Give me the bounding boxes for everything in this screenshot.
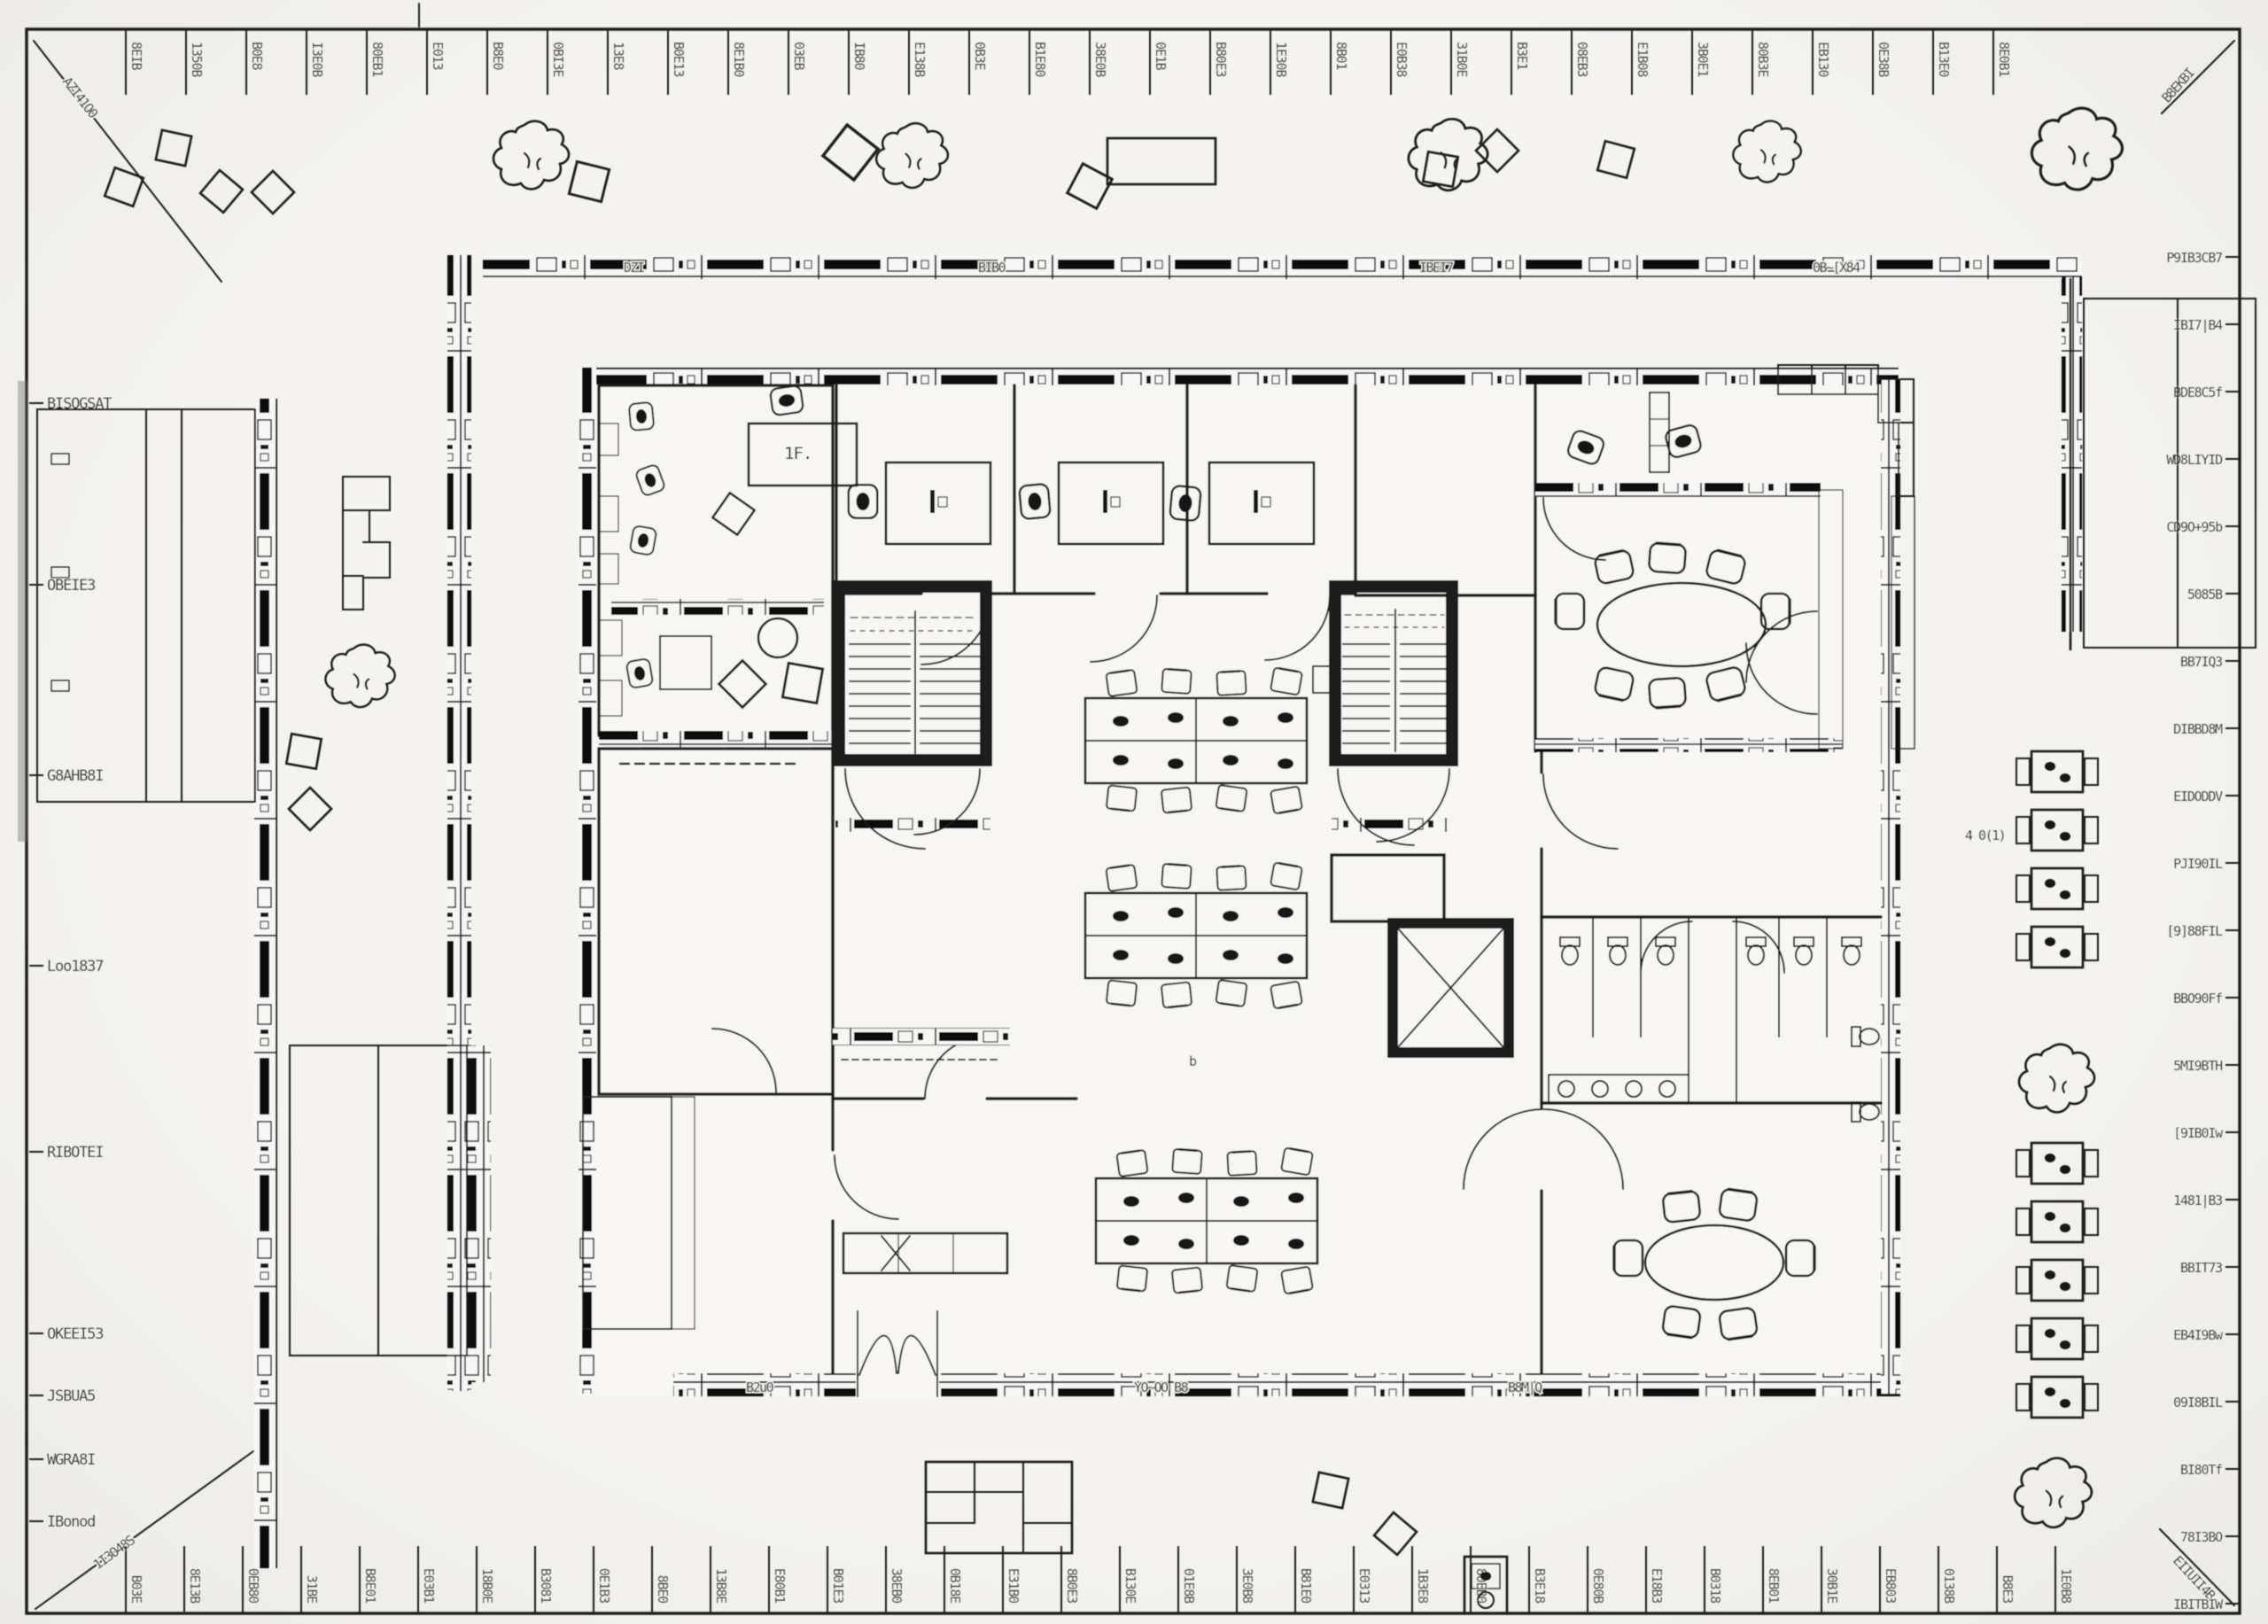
tick-top-item: 0BI3E: [548, 29, 566, 95]
tick-top-item: B0E13: [668, 29, 687, 95]
svg-text:8E0B1: 8E0B1: [1996, 42, 2012, 77]
svg-text:EB803: EB803: [1883, 1568, 1899, 1603]
label-left-item: Loo1837: [29, 958, 103, 975]
tree-icon: [325, 645, 394, 708]
label-right-item: BB7IQ3: [2180, 654, 2240, 670]
tick-top-item: 0B3E: [969, 29, 988, 95]
tick-top-item: IB80: [849, 29, 867, 95]
dimension-ticks-bottom: B03E8E13B0EB8031BEB8E01E03B118B0EB30810E…: [126, 1546, 2074, 1613]
svg-text:BBO90Ff: BBO90Ff: [2173, 991, 2222, 1006]
wall-band: [599, 731, 833, 749]
svg-text:31B0E: 31B0E: [1454, 42, 1470, 77]
dimension-labels-left: BISOGSATOBEIE3G8AHB8ILoo1837RIBOTEIOKEEI…: [29, 395, 112, 1531]
svg-text:3B0E1: 3B0E1: [1695, 42, 1711, 77]
svg-text:8BE0: 8BE0: [655, 1575, 671, 1604]
svg-text:08EB3: 08EB3: [1574, 42, 1590, 76]
tick-bottom-item: B03E: [126, 1546, 144, 1613]
svg-text:31BE: 31BE: [304, 1575, 320, 1604]
corner-note-top-left: AZI41O0: [59, 74, 102, 121]
tick-top-item: 0E1B: [1150, 29, 1169, 95]
svg-text:0E1B3: 0E1B3: [596, 1568, 612, 1603]
svg-text:B03E: B03E: [128, 1575, 144, 1604]
svg-text:IBonod: IBonod: [47, 1513, 95, 1531]
dimension-ticks-top: 8EIB1350BB0E8I3E0B80EB1E013B8E00BI3E13E8…: [126, 29, 2012, 95]
svg-text:1E0B8: 1E0B8: [2058, 1568, 2074, 1604]
tick-top-item: 8B01: [1331, 29, 1349, 95]
corner-note-top-right: B8EKBI: [2158, 65, 2197, 105]
site-wall-east: [2062, 277, 2082, 632]
tree-icon: [2019, 1045, 2094, 1113]
tick-top-item: 8E0B1: [1993, 29, 2012, 95]
svg-text:WD8LIYID: WD8LIYID: [2166, 452, 2223, 468]
svg-text:P9IB3CB7: P9IB3CB7: [2166, 250, 2222, 266]
label-right-item: BBO90Ff: [2173, 991, 2240, 1006]
tick-bottom-item: 31BE: [301, 1546, 320, 1613]
tick-bottom-item: E31B0: [1003, 1546, 1021, 1613]
tick-top-item: 1E30B: [1270, 29, 1289, 95]
tick-top-item: E0B38: [1391, 29, 1410, 95]
svg-text:B13E0: B13E0: [1936, 42, 1952, 77]
label-left-item: IBonod: [29, 1513, 95, 1531]
svg-text:IBITBIW: IBITBIW: [2173, 1597, 2224, 1612]
tick-top-item: 0E38B: [1873, 29, 1891, 95]
tick-top-item: 13E8: [608, 29, 626, 95]
tick-bottom-item: B8E01: [360, 1546, 378, 1613]
tick-bottom-item: B130E: [1120, 1546, 1138, 1613]
label-right-item: 1481|B3: [2173, 1193, 2240, 1208]
tick-bottom-item: 18B0E: [477, 1546, 495, 1613]
tick-top-item: E1B08: [1632, 29, 1651, 95]
svg-text:B3E1: B3E1: [1514, 42, 1530, 70]
tick-bottom-item: 30B1E: [1821, 1546, 1840, 1613]
tick-bottom-item: B0318: [1705, 1546, 1723, 1613]
svg-text:[9]88FIL: [9]88FIL: [2166, 923, 2223, 939]
tick-top-item: B80E3: [1210, 29, 1229, 95]
outdoor-seating-east: 4 0(1): [1965, 751, 2098, 1418]
svg-text:E31B0: E31B0: [1006, 1568, 1021, 1604]
shrub-icon: [289, 788, 331, 830]
shrub-icon: [1313, 1472, 1348, 1508]
tick-top-item: B1E80: [1029, 29, 1048, 95]
label-left-item: OBEIE3: [29, 577, 95, 594]
svg-text:BI80Tf: BI80Tf: [2180, 1462, 2222, 1478]
wall-east: [1881, 379, 1900, 1394]
svg-text:5085B: 5085B: [2187, 587, 2223, 602]
tree-icon: [2031, 108, 2122, 190]
label-left-item: WGRA8I: [29, 1451, 95, 1469]
svg-text:B01E3: B01E3: [830, 1568, 846, 1603]
tick-bottom-item: E18B3: [1646, 1546, 1665, 1613]
floorplan-canvas: AZI41O0 B8EKBI 1I3O48S EIIUII4B 8EIB1350…: [0, 0, 2268, 1624]
tick-bottom-item: 38EB0: [886, 1546, 905, 1613]
tick-top-item: I3E0B: [307, 29, 325, 95]
tree-icon: [2015, 1458, 2092, 1527]
wall-north: [579, 368, 1899, 385]
svg-text:BDE8C5f: BDE8C5f: [2173, 385, 2222, 400]
parking-rows-west: [37, 409, 255, 802]
shrub-icon: [156, 130, 191, 166]
svg-text:E80B1: E80B1: [772, 1568, 788, 1604]
tree-icon: [493, 121, 569, 190]
bench-note: 4 0(1): [1965, 828, 2005, 843]
tick-top-item: 31B0E: [1451, 29, 1470, 95]
label-right-item: 09I8BIL: [2173, 1395, 2240, 1410]
svg-text:1481|B3: 1481|B3: [2173, 1193, 2222, 1208]
shrub-icon: [1597, 141, 1635, 178]
label-right-item: 78I3BO: [2180, 1529, 2240, 1545]
svg-text:OBEIE3: OBEIE3: [47, 577, 95, 594]
svg-text:0B18E: 0B18E: [947, 1568, 963, 1604]
label-right-item: BDE8C5f: [2173, 385, 2240, 400]
svg-text:30B1E: 30B1E: [1824, 1568, 1840, 1604]
tick-bottom-item: B81E0: [1295, 1546, 1314, 1613]
svg-text:I3E0B: I3E0B: [309, 42, 325, 77]
svg-text:IBEI7: IBEI7: [1419, 260, 1453, 276]
label-right-item: IBITBIW: [2173, 1597, 2240, 1612]
svg-text:B0E13: B0E13: [671, 42, 687, 76]
svg-text:E0313: E0313: [1356, 1568, 1372, 1603]
svg-text:PJI90IL: PJI90IL: [2173, 856, 2223, 872]
wall-west: [579, 368, 596, 1394]
svg-text:BB7IQ3: BB7IQ3: [2180, 654, 2222, 670]
svg-text:8E13B: 8E13B: [187, 1568, 203, 1604]
svg-text:8EB01: 8EB01: [1766, 1568, 1782, 1604]
svg-text:0BI3E: 0BI3E: [550, 42, 566, 77]
svg-text:B0E8: B0E8: [249, 42, 265, 70]
label-left-item: OKEEI53: [29, 1325, 103, 1343]
svg-text:8B0E3: 8B0E3: [1064, 1568, 1080, 1603]
svg-text:RIBOTEI: RIBOTEI: [47, 1144, 103, 1162]
stair-side-column: [468, 1045, 491, 1382]
svg-text:B8E0: B8E0: [490, 42, 506, 70]
svg-text:0EB80: 0EB80: [245, 1568, 261, 1604]
svg-text:8EIB: 8EIB: [128, 42, 144, 70]
svg-text:YO~OO B8: YO~OO B8: [1134, 1379, 1189, 1395]
paving-puzzle-south: [926, 1462, 1072, 1553]
svg-text:B81E0: B81E0: [1298, 1568, 1314, 1604]
tree-icon: [876, 123, 948, 188]
scan-smudge: [18, 381, 28, 842]
svg-text:13B8E: 13B8E: [713, 1568, 729, 1604]
svg-text:B130E: B130E: [1122, 1568, 1138, 1604]
svg-text:EIDODDV: EIDODDV: [2173, 789, 2223, 804]
tick-top-item: 80B3E: [1752, 29, 1771, 95]
label-right-item: DIBBD8M: [2173, 721, 2240, 737]
svg-text:80EB1: 80EB1: [369, 42, 385, 77]
tick-bottom-item: 8EB01: [1763, 1546, 1782, 1613]
svg-text:B3081: B3081: [538, 1568, 554, 1604]
tick-top-item: 3B0E1: [1692, 29, 1711, 95]
tick-bottom-item: 0B18E: [944, 1546, 963, 1613]
svg-text:01E8B: 01E8B: [1181, 1568, 1197, 1604]
tick-bottom-item: 01E8B: [1178, 1546, 1197, 1613]
svg-text:B3E18: B3E18: [1532, 1568, 1548, 1604]
shrub-icon: [1423, 152, 1457, 186]
label-right-item: [9IB0Iw: [2173, 1125, 2240, 1141]
tick-bottom-item: B01E3: [827, 1546, 846, 1613]
svg-text:G8AHB8I: G8AHB8I: [47, 767, 103, 785]
svg-text:CD9O+95b: CD9O+95b: [2166, 519, 2223, 535]
tick-top-item: B13E0: [1933, 29, 1952, 95]
svg-text:B8M|Q: B8M|Q: [1508, 1379, 1542, 1395]
svg-text:IB80: IB80: [851, 42, 867, 70]
shrub-icon: [569, 161, 609, 201]
svg-text:BIB0: BIB0: [978, 260, 1006, 276]
corner-diagonal-top-left: [34, 41, 221, 282]
shelf-row: [611, 599, 824, 615]
svg-text:B8E01: B8E01: [362, 1568, 378, 1604]
reception-desk-label: 1F.: [784, 444, 812, 463]
paving-puzzle-west: [343, 477, 390, 610]
label-right-item: P9IB3CB7: [2166, 250, 2240, 266]
svg-text:E138B: E138B: [912, 42, 928, 77]
building: DZI BIB0 IBEI7 0B~[X84 B2u0 YO~OO B8 B8M…: [579, 260, 1915, 1398]
label-right-item: EB4I9Bw: [2173, 1327, 2240, 1343]
site-curb-column-west: [254, 399, 277, 1568]
svg-text:E18B3: E18B3: [1649, 1568, 1665, 1603]
label-right-item: PJI90IL: [2173, 856, 2240, 872]
tick-bottom-item: 8BE0: [652, 1546, 671, 1613]
tick-bottom-item: 8E13B: [184, 1546, 203, 1613]
tick-top-item: E138B: [909, 29, 928, 95]
svg-text:38EB0: 38EB0: [889, 1568, 905, 1604]
svg-text:09I8BIL: 09I8BIL: [2173, 1395, 2223, 1410]
svg-text:Loo1837: Loo1837: [47, 958, 103, 975]
label-right-item: IBI7|B4: [2173, 317, 2240, 333]
tick-top-item: 8EIB: [126, 29, 144, 95]
svg-text:1350B: 1350B: [189, 42, 205, 77]
storage-shelf: [833, 1028, 1010, 1045]
svg-text:JSBUA5: JSBUA5: [47, 1387, 95, 1405]
tick-bottom-item: B8E3: [1997, 1546, 2016, 1613]
tick-top-item: EB130: [1813, 29, 1831, 95]
tick-top-item: 08EB3: [1572, 29, 1590, 95]
tick-bottom-item: E80B1: [769, 1546, 788, 1613]
label-right-item: [9]88FIL: [2166, 923, 2240, 939]
svg-text:1B3E8: 1B3E8: [1415, 1568, 1431, 1604]
tick-top-item: 80EB1: [367, 29, 385, 95]
svg-text:8E1B0: 8E1B0: [731, 42, 747, 77]
svg-text:0E38B: 0E38B: [1876, 42, 1891, 77]
tick-bottom-item: 1E0B8: [2055, 1546, 2074, 1613]
shrub-icon: [823, 125, 878, 180]
svg-text:18B0E: 18B0E: [479, 1568, 495, 1604]
tick-bottom-item: B3081: [535, 1546, 554, 1613]
svg-text:8B01: 8B01: [1333, 42, 1349, 70]
tree-icon: [1733, 121, 1801, 183]
svg-text:WGRA8I: WGRA8I: [47, 1451, 95, 1469]
svg-text:0138B: 0138B: [1941, 1568, 1957, 1604]
svg-text:[9IB0Iw: [9IB0Iw: [2173, 1125, 2224, 1141]
tick-top-item: 1350B: [186, 29, 205, 95]
svg-text:0B~[X84: 0B~[X84: [1813, 260, 1860, 276]
tick-bottom-item: 3E0B8: [1237, 1546, 1255, 1613]
tick-top-item: B3E1: [1511, 29, 1530, 95]
label-left-item: RIBOTEI: [29, 1144, 103, 1162]
shrub-icon: [1374, 1512, 1417, 1555]
svg-text:DZI: DZI: [624, 260, 644, 276]
shrub-icon: [286, 734, 321, 768]
shrub-icon: [252, 171, 294, 214]
tick-top-item: 38E0B: [1090, 29, 1108, 95]
svg-text:5MI9BTH: 5MI9BTH: [2173, 1058, 2223, 1074]
tick-bottom-item: 0E1B3: [594, 1546, 612, 1613]
tick-bottom-item: E0313: [1354, 1546, 1372, 1613]
floorplan-page: AZI41O0 B8EKBI 1I3O48S EIIUII4B 8EIB1350…: [0, 0, 2268, 1624]
svg-text:EB4I9Bw: EB4I9Bw: [2173, 1327, 2224, 1343]
label-right-item: 5085B: [2187, 587, 2240, 602]
svg-text:IBI7|B4: IBI7|B4: [2173, 317, 2223, 333]
tick-bottom-item: 13B8E: [711, 1546, 729, 1613]
tick-top-item: 8E1B0: [728, 29, 747, 95]
tick-bottom-item: 0E80B: [1588, 1546, 1606, 1613]
label-left-item: G8AHB8I: [29, 767, 103, 785]
tick-bottom-item: 0138B: [1938, 1546, 1957, 1613]
tick-bottom-item: E03B1: [418, 1546, 437, 1613]
svg-text:BBIT73: BBIT73: [2180, 1260, 2222, 1276]
svg-text:E013: E013: [430, 42, 446, 69]
planter-bench: [1107, 138, 1216, 184]
svg-text:DIBBD8M: DIBBD8M: [2173, 721, 2223, 737]
svg-text:03EB: 03EB: [791, 42, 807, 70]
tick-bottom-item: EB803: [1880, 1546, 1899, 1613]
svg-text:80B3E: 80B3E: [1755, 42, 1771, 77]
svg-text:EB130: EB130: [1815, 42, 1831, 77]
svg-text:B2u0: B2u0: [746, 1379, 774, 1395]
svg-text:E0B38: E0B38: [1394, 42, 1410, 77]
corner-note-bottom-left: 1I3O48S: [90, 1532, 138, 1573]
tick-bottom-item: B3E18: [1529, 1546, 1548, 1613]
svg-text:38E0B: 38E0B: [1092, 42, 1108, 77]
svg-text:B80E3: B80E3: [1213, 42, 1229, 76]
svg-text:E03B1: E03B1: [421, 1568, 437, 1604]
svg-text:13E8: 13E8: [610, 42, 626, 70]
shrub-icon: [1068, 164, 1113, 209]
exterior-stair-southwest: [290, 1045, 467, 1356]
svg-text:B0318: B0318: [1707, 1568, 1723, 1604]
label-left-item: JSBUA5: [29, 1387, 95, 1405]
tick-bottom-item: 1B3E8: [1412, 1546, 1431, 1613]
svg-text:3E0B8: 3E0B8: [1239, 1568, 1255, 1604]
label-right-item: BI80Tf: [2180, 1462, 2240, 1478]
svg-text:E1B08: E1B08: [1635, 42, 1651, 77]
svg-text:0E1B: 0E1B: [1153, 42, 1169, 70]
shrub-icon: [200, 170, 243, 213]
svg-text:1E30B: 1E30B: [1273, 42, 1289, 77]
label-right-item: BBIT73: [2180, 1260, 2240, 1276]
svg-text:OKEEI53: OKEEI53: [47, 1325, 103, 1343]
tick-top-item: B0E8: [246, 29, 265, 95]
tick-top-item: E013: [427, 29, 446, 95]
tick-top-item: 03EB: [788, 29, 807, 95]
label-right-item: 5MI9BTH: [2173, 1058, 2240, 1074]
svg-text:78I3BO: 78I3BO: [2180, 1529, 2223, 1545]
svg-text:0B3E: 0B3E: [972, 42, 988, 70]
tick-bottom-item: 8B0E3: [1061, 1546, 1080, 1613]
tick-top-item: B8E0: [487, 29, 506, 95]
svg-text:0E80B: 0E80B: [1590, 1568, 1606, 1604]
svg-text:B8E3: B8E3: [2000, 1575, 2016, 1603]
label-right-item: EIDODDV: [2173, 789, 2240, 804]
svg-text:B1E80: B1E80: [1032, 42, 1048, 77]
